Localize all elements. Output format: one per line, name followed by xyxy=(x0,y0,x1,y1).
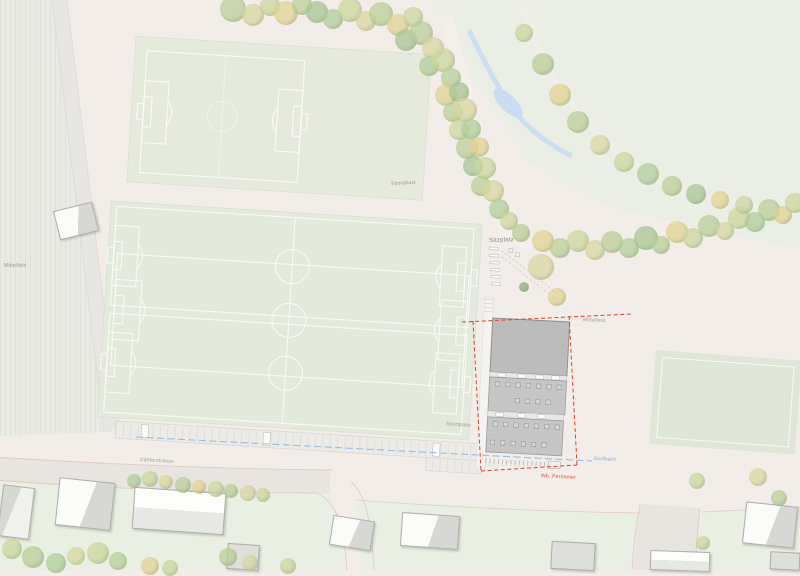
site-plan: Sportplatz Sitzplatz Mittelfeld Mittelfe… xyxy=(0,0,800,570)
labels-layer: Sportplatz Sitzplatz Mittelfeld Mittelfe… xyxy=(0,0,800,570)
label-creek: Dorfbach xyxy=(594,457,616,463)
label-sportplatz-bottom: Sportplatz xyxy=(446,422,471,429)
label-sportplatz-top: Sportplatz xyxy=(391,181,416,187)
label-mittelfeld-right: Mittelfeld xyxy=(583,318,606,324)
label-mittelfeld-left: Mittelfeld xyxy=(4,264,27,269)
label-sitzplatz: Sitzplatz xyxy=(489,237,514,244)
label-perimeter: Wb. Perimeter xyxy=(541,474,576,481)
label-street: Dählerstrasse xyxy=(140,458,174,465)
